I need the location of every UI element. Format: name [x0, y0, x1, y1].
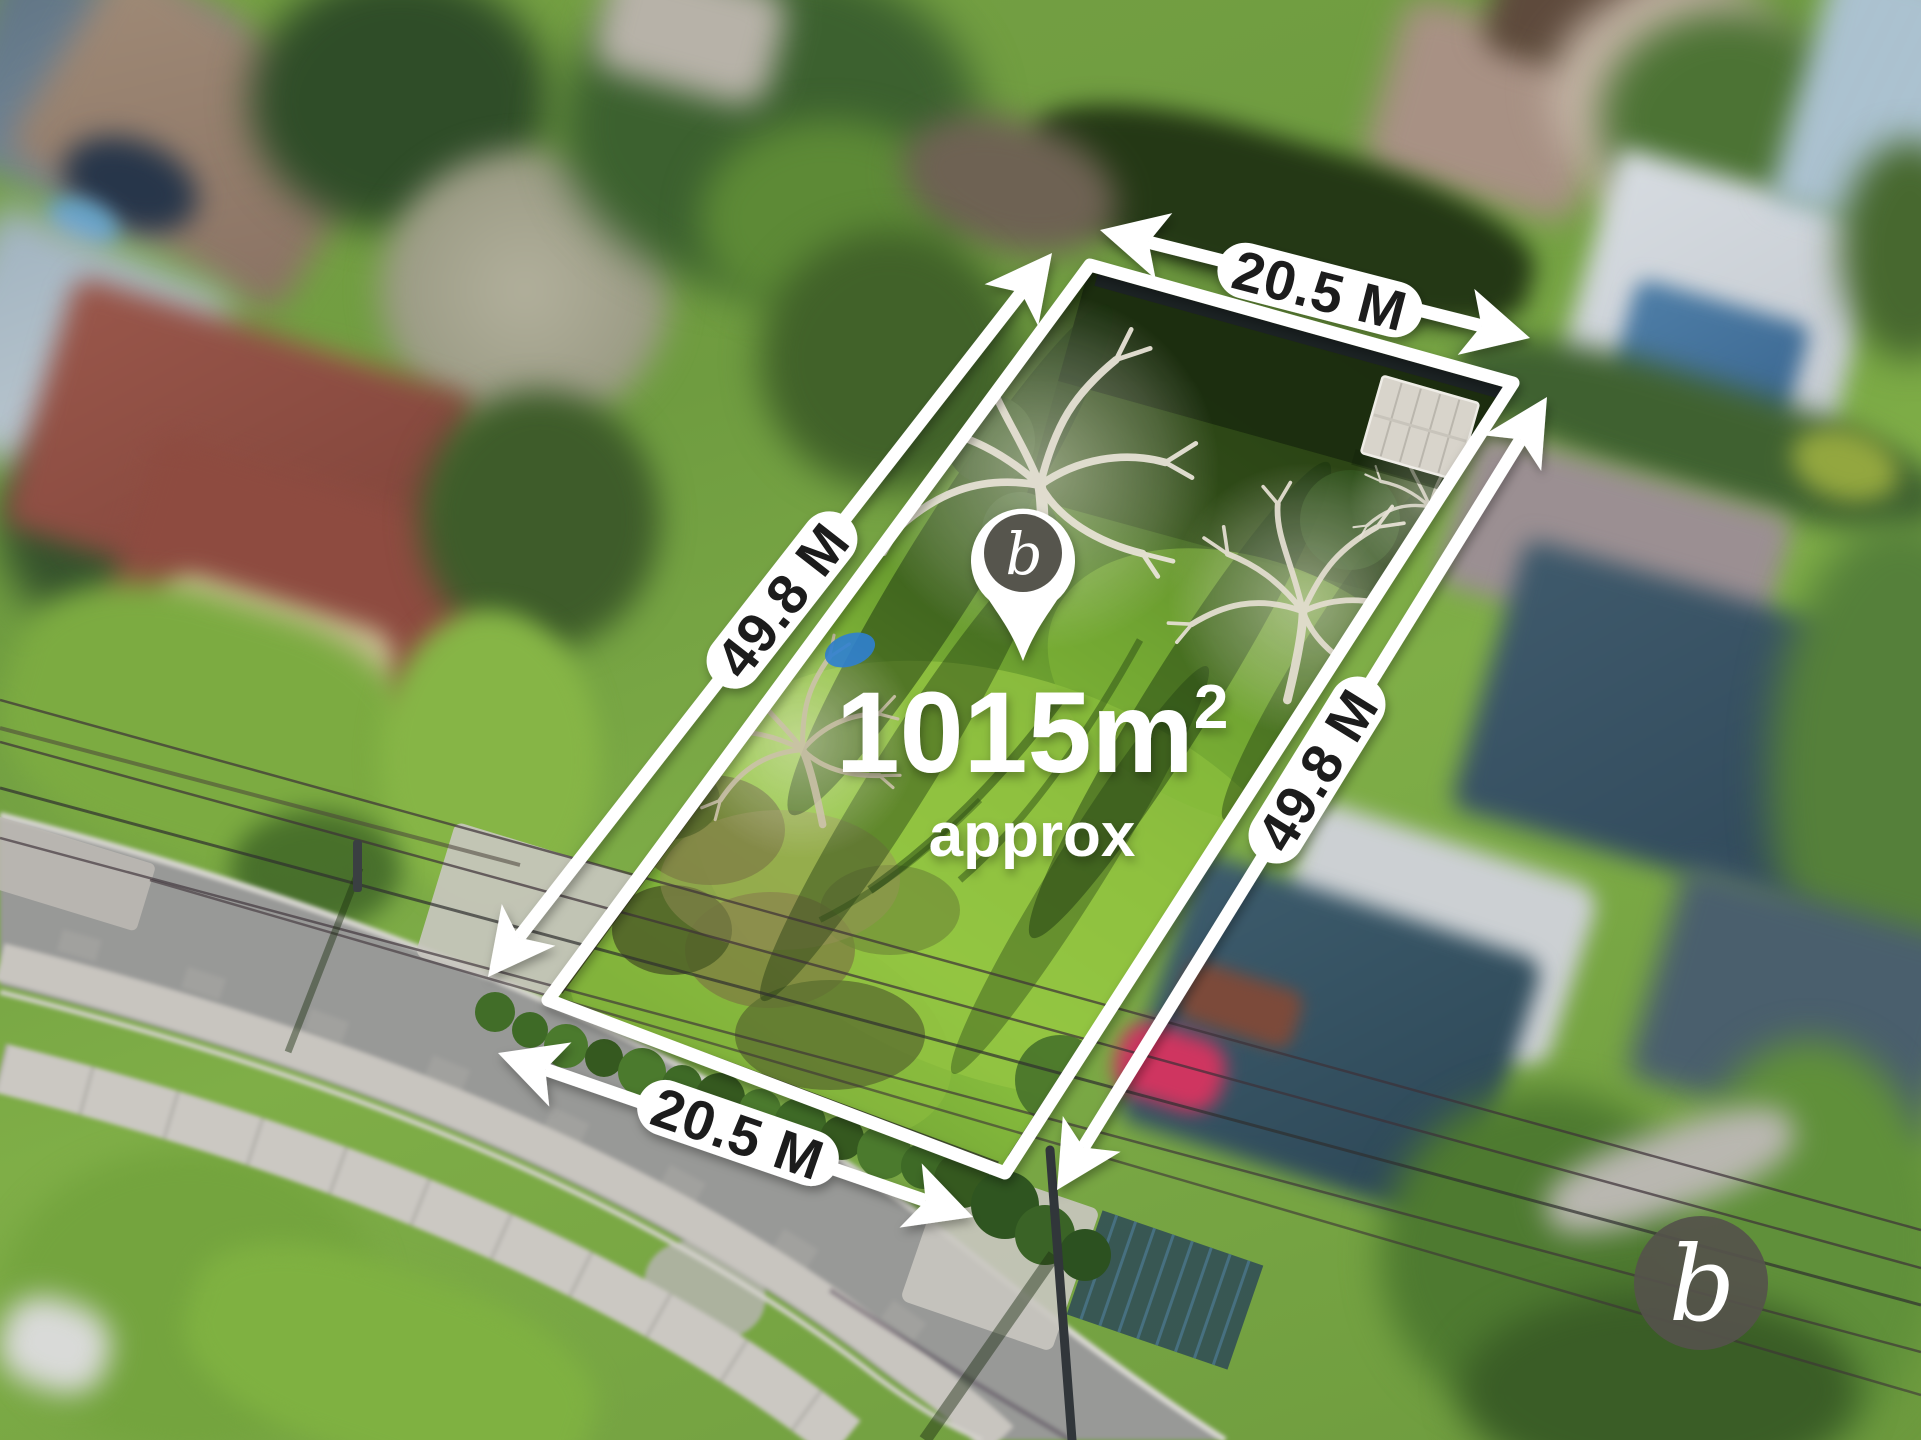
- area-qualifier: approx: [929, 801, 1136, 870]
- aerial-photo: 20.5 M 49.8 M 49.8 M 20.5 M b 1015m2: [0, 0, 1921, 1440]
- annotation-overlay: 20.5 M 49.8 M 49.8 M 20.5 M b 1015m2: [0, 0, 1921, 1440]
- pin-letter: b: [1005, 520, 1042, 588]
- area-label: 1015m2: [836, 669, 1229, 797]
- watermark-letter: b: [1669, 1223, 1736, 1345]
- power-pole: [353, 840, 362, 892]
- brand-logo-watermark: b: [1634, 1216, 1768, 1350]
